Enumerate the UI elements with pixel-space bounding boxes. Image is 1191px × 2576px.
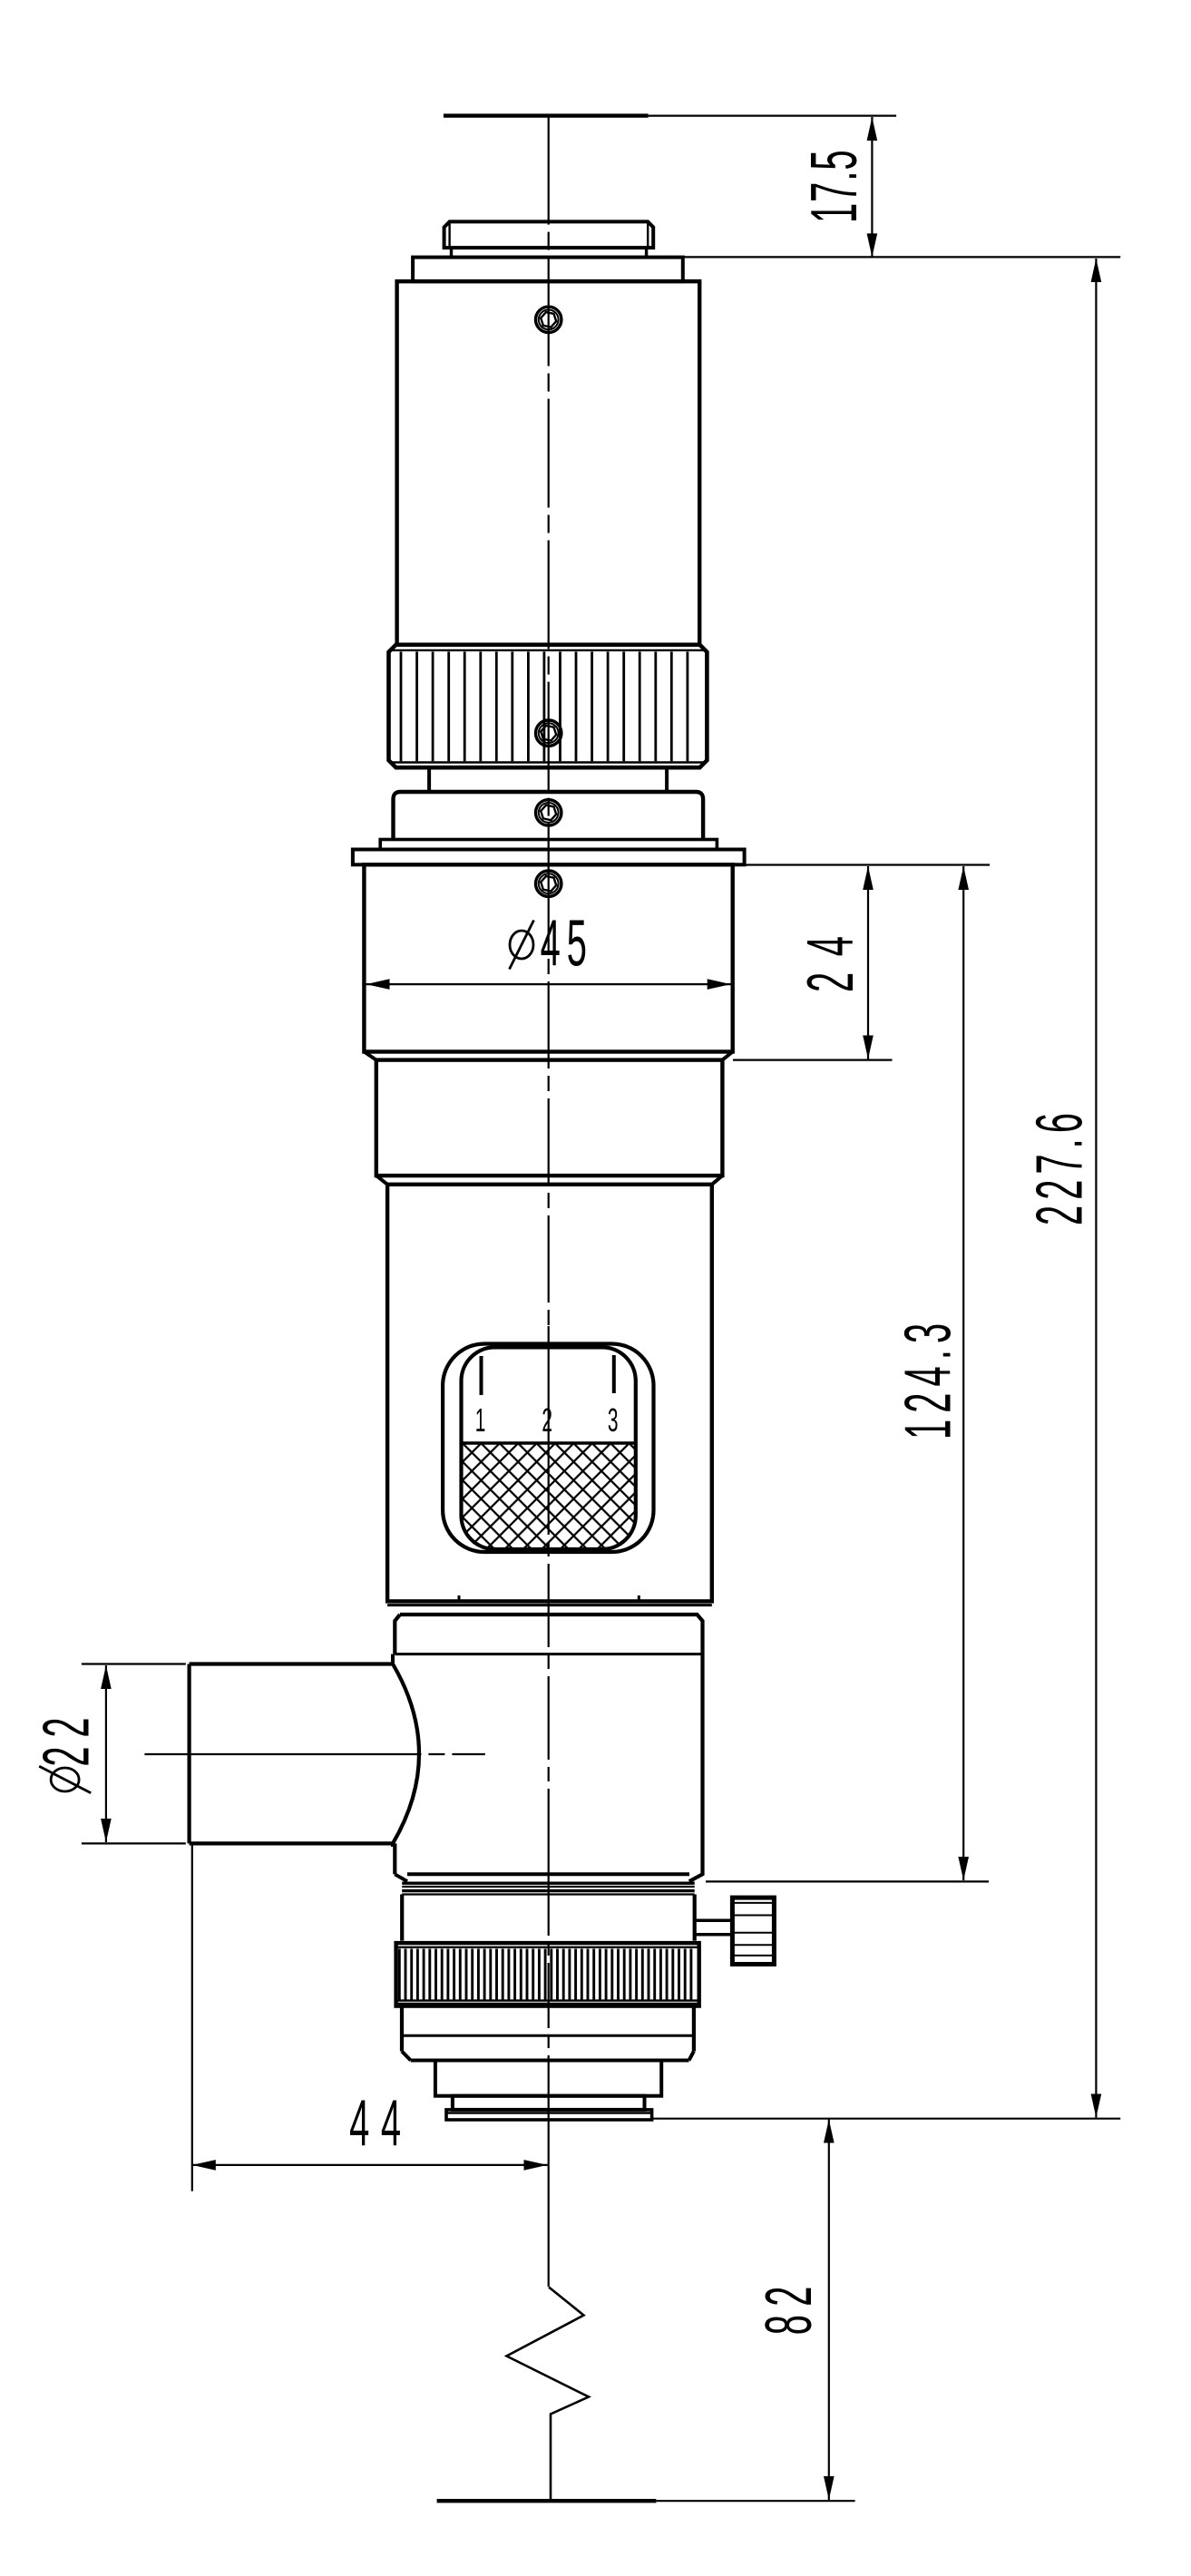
svg-text:124.3: 124.3: [892, 1323, 965, 1439]
svg-text:3: 3: [608, 1402, 619, 1439]
svg-text:2: 2: [542, 1402, 552, 1439]
svg-text:227.6: 227.6: [1023, 1113, 1097, 1225]
svg-text:1: 1: [475, 1402, 486, 1439]
svg-text:17.5: 17.5: [797, 150, 871, 223]
